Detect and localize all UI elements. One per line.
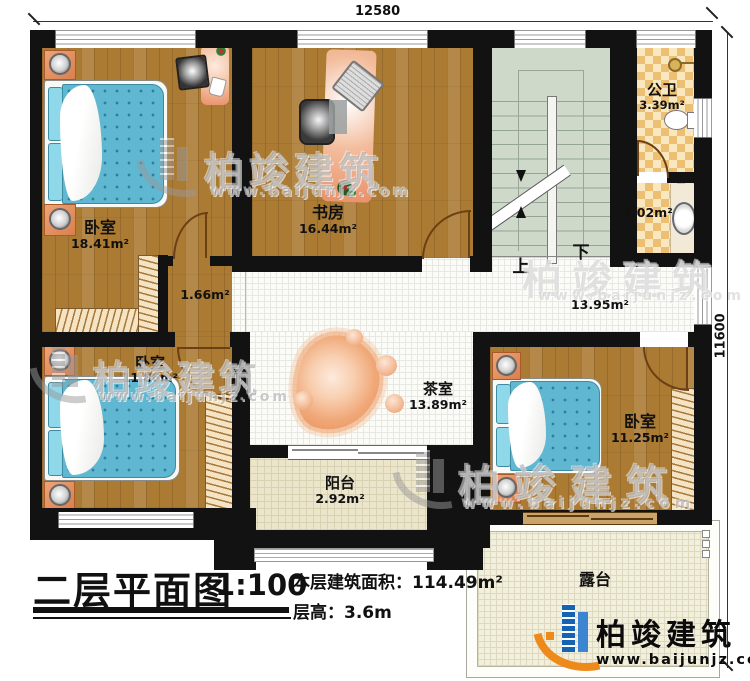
door-panel bbox=[468, 210, 470, 258]
rug-dot bbox=[346, 329, 363, 346]
room-name: 茶室 bbox=[388, 381, 488, 398]
tv-icon bbox=[175, 54, 210, 91]
door-panel bbox=[205, 212, 207, 258]
room-label-vanity: 2.02m² bbox=[608, 206, 688, 220]
shower-icon bbox=[668, 58, 682, 72]
room-name: 卧室 bbox=[590, 413, 690, 431]
watermark-url: www.baijunjz.com bbox=[462, 494, 695, 512]
room-name: 露台 bbox=[545, 571, 645, 589]
dimension-tick bbox=[706, 7, 719, 20]
door-panel bbox=[637, 140, 639, 176]
watermark-logo-icon bbox=[33, 347, 89, 405]
title-block: 二层平面图 1:100 本层建筑面积：114.49m² 层高：3.6m bbox=[33, 560, 473, 640]
watermark-logo-icon bbox=[396, 450, 454, 510]
wall-balcony-top-left bbox=[250, 445, 288, 458]
watermark-url: www.baijunjz.com bbox=[538, 288, 745, 304]
brand-name: 柏竣建筑 bbox=[596, 610, 736, 654]
room-area: 18.41m² bbox=[50, 237, 150, 251]
room-label-bedroom-br: 卧室 11.25m² bbox=[590, 413, 690, 445]
room-name: 公卫 bbox=[622, 82, 702, 99]
stair-arrow-down-icon bbox=[516, 170, 526, 182]
window-bedroom-tl bbox=[55, 30, 196, 48]
lamp-icon bbox=[49, 53, 71, 75]
watermark: 柏竣建筑 www.baijunjz.com bbox=[33, 345, 273, 407]
dimension-right-value: 11600 bbox=[714, 314, 729, 362]
chair-mat bbox=[329, 100, 347, 134]
watermark-logo-icon bbox=[140, 138, 198, 198]
room-area: 1.66m² bbox=[165, 288, 245, 302]
room-area: 2.92m² bbox=[290, 492, 390, 506]
wall-vent bbox=[702, 540, 710, 548]
sliding-door-panel bbox=[527, 515, 589, 517]
watermark: 柏竣建筑 www.baijunjz.com bbox=[140, 138, 400, 200]
stair-arrow-up-icon bbox=[516, 206, 526, 218]
dimension-top-value: 12580 bbox=[352, 4, 403, 19]
room-label-hall-small: 1.66m² bbox=[165, 288, 245, 302]
dimension-line-top bbox=[33, 21, 713, 22]
title-underline-thick bbox=[33, 607, 289, 613]
floor-plan: 卧室 18.41m² 书房 16.44m² 公卫 3.39m² 2.02m² 1… bbox=[0, 0, 750, 681]
brand-logo: 柏竣建筑 www.baijunjz.com bbox=[538, 604, 743, 676]
title-underline-thin bbox=[33, 617, 291, 619]
wall-bedroom-br-top bbox=[473, 332, 640, 347]
wall-study-bottom-right bbox=[470, 256, 492, 272]
blanket bbox=[60, 85, 102, 201]
wall-study-stairs bbox=[473, 42, 492, 258]
dimension-tick bbox=[28, 13, 41, 26]
shower-arm bbox=[680, 62, 695, 64]
lamp-icon bbox=[49, 484, 71, 506]
wall-study-bottom-left bbox=[232, 256, 422, 272]
toilet-icon bbox=[664, 110, 689, 130]
watermark: 柏竣建筑 www.baijunjz.com bbox=[522, 248, 750, 304]
watermark: 柏竣建筑 www.baijunjz.com bbox=[396, 450, 686, 512]
room-area: 16.44m² bbox=[278, 222, 378, 236]
floor-area-value: 114.49m² bbox=[412, 573, 503, 593]
wall-stairs-bath bbox=[610, 42, 637, 267]
door-panel bbox=[686, 347, 688, 390]
wall-bedroom-tl-door-stub bbox=[210, 256, 234, 266]
room-area: 2.02m² bbox=[608, 206, 688, 220]
rug-dot bbox=[294, 391, 313, 410]
sliding-door-panel bbox=[591, 518, 653, 520]
lamp-icon bbox=[496, 355, 517, 376]
brand-url: www.baijunjz.com bbox=[596, 652, 750, 668]
window-bedroom-bl bbox=[58, 512, 194, 528]
room-name: 书房 bbox=[278, 204, 378, 222]
hallway-divider-line bbox=[245, 265, 246, 332]
floor-area-row: 本层建筑面积：114.49m² bbox=[293, 568, 503, 593]
window-stairs bbox=[514, 30, 586, 48]
floor-height-label: 层高： bbox=[293, 603, 344, 623]
wardrobe-bedroom-bl bbox=[205, 394, 234, 510]
watermark-url: www.baijunjz.com bbox=[210, 182, 411, 200]
wall-bedroom-br-top-stub bbox=[688, 332, 712, 347]
wall-vent bbox=[702, 550, 710, 558]
room-label-study: 书房 16.44m² bbox=[278, 204, 378, 236]
rug-dot bbox=[376, 355, 397, 376]
brand-logo-icon bbox=[538, 604, 594, 674]
closet-horizontal bbox=[55, 308, 140, 333]
window-study bbox=[297, 30, 428, 48]
wall-bath-divider bbox=[667, 172, 712, 183]
room-area: 3.39m² bbox=[622, 99, 702, 112]
room-area: 13.89m² bbox=[388, 398, 488, 412]
room-label-tea: 茶室 13.89m² bbox=[388, 381, 488, 412]
floor-height-value: 3.6m bbox=[344, 603, 392, 623]
watermark-url: www.baijunjz.com bbox=[99, 389, 290, 405]
wall-outer-left bbox=[30, 30, 42, 540]
room-name: 卧室 bbox=[50, 219, 150, 237]
closet-vertical bbox=[138, 255, 160, 333]
wall-vent bbox=[702, 530, 710, 538]
room-area: 11.25m² bbox=[590, 431, 690, 445]
room-label-balcony: 阳台 2.92m² bbox=[290, 475, 390, 506]
wall-balcony-bottom bbox=[250, 530, 443, 548]
floor-area-label: 本层建筑面积： bbox=[293, 573, 412, 593]
window-bathroom bbox=[636, 30, 696, 48]
room-label-bathroom: 公卫 3.39m² bbox=[622, 82, 702, 112]
room-name: 阳台 bbox=[290, 475, 390, 492]
floor-height-row: 层高：3.6m bbox=[293, 598, 392, 623]
sliding-door-panel bbox=[292, 449, 358, 451]
room-label-bedroom-tl: 卧室 18.41m² bbox=[50, 219, 150, 251]
room-label-terrace: 露台 bbox=[545, 571, 645, 589]
